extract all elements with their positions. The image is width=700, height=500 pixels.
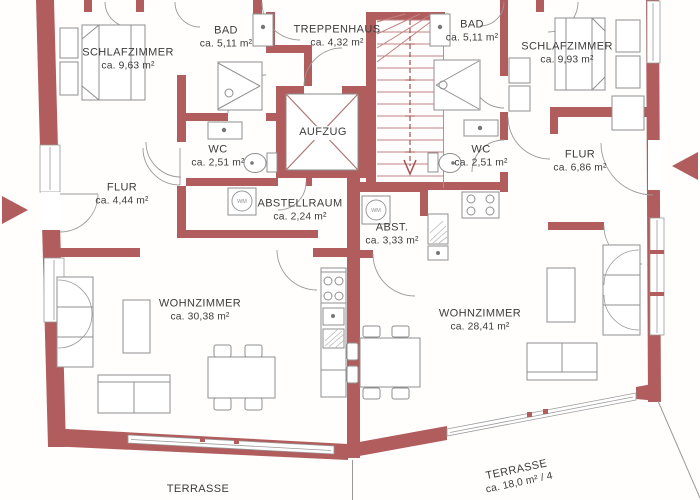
window-mullion-2 (650, 292, 664, 296)
nightstand-left-1 (60, 28, 78, 58)
door-wohnzimmer-left (277, 250, 317, 290)
label-schlafzimmer-right: SCHLAFZIMMER ca. 9,93 m² (521, 41, 613, 68)
shower-left (218, 62, 262, 110)
label-wohnzimmer-left: WOHNZIMMER ca. 30,38 m² (159, 298, 241, 325)
wardrobe-wz-right (603, 245, 640, 335)
label-bad-right: BAD ca. 5,11 m² (446, 19, 498, 46)
label-schlafzimmer-left: SCHLAFZIMMER ca. 9,63 m² (82, 47, 174, 74)
room-area: ca. 6,86 m² (553, 162, 606, 175)
terrace-right-edge (658, 401, 700, 498)
washing-machine-abst: WM (362, 196, 390, 224)
wall-bad-left-bottom-a (177, 113, 228, 121)
wall-central (347, 160, 360, 458)
entrance-arrow-left-icon (672, 152, 698, 180)
wall-wc-right-b (500, 172, 508, 192)
nightstand-left-2 (60, 62, 78, 95)
door-gap-entrance-left (41, 192, 61, 230)
room-name: WOHNZIMMER (159, 298, 241, 312)
wall-abst-right (420, 192, 428, 216)
room-area: ca. 5,11 m² (200, 38, 252, 51)
label-aufzug: AUFZUG (296, 126, 350, 140)
floor-plan: WM WM (0, 0, 700, 500)
wardrobe-wz-left (57, 277, 93, 367)
wm-label: WM (237, 199, 247, 205)
room-area: ca. 4,32 m² (294, 37, 381, 50)
stair-direction-arrow-icon (404, 160, 416, 174)
wall-bad-right (500, 0, 508, 76)
room-name: BAD (200, 25, 252, 39)
label-flur-right: FLUR ca. 6,86 m² (553, 149, 606, 176)
sideboard-left (123, 300, 150, 353)
stove-right-icon (462, 192, 499, 218)
dining-table-left (208, 345, 275, 410)
wall-bad-left-side (177, 75, 186, 130)
label-flur-left: FLUR ca. 4,44 m² (95, 182, 148, 209)
wall-wc-abstell-a (186, 178, 278, 186)
window-mullion-1 (650, 250, 664, 254)
sofa-right (527, 343, 597, 380)
door-top-1 (105, 2, 130, 27)
wall-lift-bottom (276, 170, 368, 178)
label-terrasse-left: TERRASSE (167, 483, 230, 497)
entrance-arrow-right-icon (2, 196, 28, 224)
wall-flur-right-bottom (548, 222, 604, 230)
room-name: AUFZUG (299, 126, 347, 140)
wall-wz-left-top (44, 248, 140, 257)
window-right-top (647, 1, 660, 63)
label-treppenhaus: TREPPENHAUS ca. 4,32 m² (294, 24, 381, 51)
label-abst: ABST. ca. 3,33 m² (365, 222, 418, 249)
wall-lift-right (358, 86, 367, 178)
window-tick-2 (234, 439, 239, 444)
room-name: ABST. (365, 222, 418, 236)
dishwasher-right-icon (428, 214, 448, 244)
window-tick-3 (527, 412, 532, 417)
room-name: FLUR (95, 182, 148, 196)
wall-left-corridor-a (177, 130, 186, 142)
wall-top-stub-1 (84, 0, 92, 12)
label-bad-left: BAD ca. 5,11 m² (200, 25, 252, 52)
wall-top-stub-4 (536, 0, 544, 12)
wall-kitchen-left-corner (313, 248, 347, 257)
toilet-left (244, 153, 277, 173)
label-wc-left: WC ca. 2,51 m² (191, 144, 244, 171)
washbasin-wc-right (464, 120, 498, 136)
side-table-right (547, 268, 575, 322)
room-area: ca. 2,51 m² (454, 157, 507, 170)
door-gap-entrance-right (648, 140, 662, 190)
door-wohnzimmer-right (373, 254, 415, 296)
door-top-2 (175, 2, 200, 27)
room-area: ca. 2,51 m² (191, 157, 244, 170)
wall-wc-abstell-b (306, 178, 312, 186)
wall-top-stub-2 (136, 0, 144, 12)
room-name: SCHLAFZIMMER (82, 47, 174, 61)
door-entrance-right (601, 143, 653, 195)
shower-right (434, 60, 480, 110)
wall-wz-right-top-stub (360, 250, 373, 258)
washbasin-bad-left (253, 14, 273, 46)
room-area: ca. 5,11 m² (446, 32, 498, 45)
room-name: WC (191, 144, 244, 158)
room-name: WC (454, 144, 507, 158)
room-name: SCHLAFZIMMER (521, 41, 613, 55)
wm-label: WM (371, 208, 381, 214)
label-wc-right: WC ca. 2,51 m² (454, 144, 507, 171)
door-entrance-left (60, 194, 98, 232)
closet-right-2 (509, 86, 530, 111)
room-name: FLUR (553, 149, 606, 163)
sofa-left (98, 375, 170, 413)
room-name: TERRASSE (167, 483, 230, 497)
floorplan-canvas: WM WM (0, 0, 700, 500)
room-name: BAD (446, 19, 498, 33)
room-area: ca. 9,63 m² (82, 60, 174, 73)
door-schlafzimmer-right (508, 117, 550, 159)
kitchen-left (321, 268, 346, 397)
room-name: ABSTELLRAUM (257, 198, 342, 212)
wall-wc-right-a (500, 112, 508, 140)
wall-below-stairs (347, 182, 428, 192)
room-name: WOHNZIMMER (439, 308, 521, 322)
wall-abstell-bottom (177, 230, 318, 238)
wall-bedroom-right-stub (550, 107, 558, 134)
door-schlafzimmer-left (143, 148, 180, 185)
room-area: ca. 4,44 m² (95, 195, 148, 208)
wardrobe-bedroom-right (612, 96, 644, 130)
nightstand-right-1 (616, 20, 640, 52)
room-area: ca. 9,93 m² (521, 54, 613, 67)
room-area: ca. 30,38 m² (159, 311, 241, 324)
room-area: ca. 28,41 m² (439, 321, 521, 334)
label-wohnzimmer-right: WOHNZIMMER ca. 28,41 m² (439, 308, 521, 335)
washing-machine-abstellraum: WM (228, 188, 256, 215)
room-area: ca. 2,24 m² (257, 211, 342, 224)
kitchen-right (428, 192, 499, 260)
label-abstellraum: ABSTELLRAUM ca. 2,24 m² (257, 198, 342, 225)
room-area: ca. 3,33 m² (365, 235, 418, 248)
window-tick-4 (543, 409, 548, 414)
nightstand-right-2 (616, 56, 640, 88)
wall-kitchen-right-top (422, 182, 508, 190)
window-tick-1 (200, 437, 205, 442)
room-name: TREPPENHAUS (294, 24, 381, 38)
washbasin-wc-left (208, 122, 242, 139)
wall-terrace-left-end (348, 426, 447, 458)
